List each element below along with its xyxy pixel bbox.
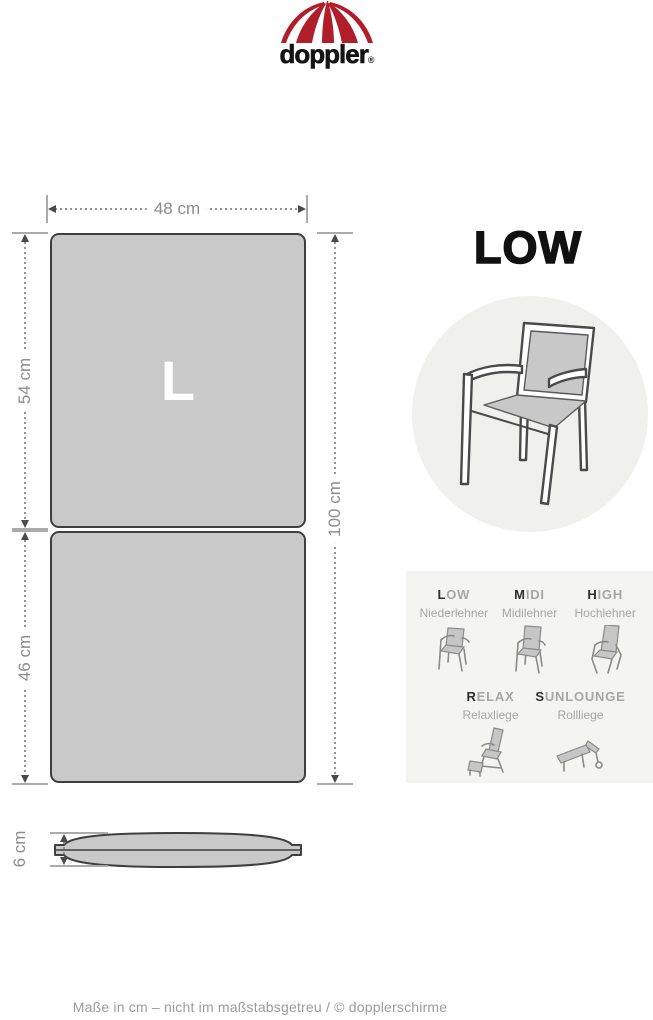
chair-relax-icon bbox=[467, 727, 515, 779]
variants-panel: LOW Niederlehner MIDI Midilehner bbox=[406, 571, 653, 783]
umbrella-icon bbox=[279, 0, 375, 44]
cushion-backrest: L bbox=[50, 233, 306, 528]
chair-low-icon bbox=[432, 625, 476, 675]
dimension-back-height-label: 54 cm bbox=[15, 351, 35, 411]
arrowhead-up-icon bbox=[60, 834, 68, 842]
variant-midi: MIDI Midilehner bbox=[492, 587, 568, 675]
footer-note: Maße in cm – nicht im maßstabsgetreu / ©… bbox=[20, 999, 500, 1015]
variant-code: HIGH bbox=[587, 587, 623, 603]
size-letter: L bbox=[161, 353, 195, 409]
chair-sunlounge-icon bbox=[555, 734, 607, 782]
extension-tick bbox=[12, 232, 48, 234]
variants-row-2: RELAX Relaxliege SUNLOUNGE Rollliege bbox=[406, 689, 653, 782]
variant-code: RELAX bbox=[466, 689, 514, 705]
dimension-total-height: 100 cm bbox=[317, 233, 353, 784]
product-category-title: LOW bbox=[428, 225, 628, 270]
arrowhead-up-icon bbox=[21, 532, 29, 540]
arrowhead-down-icon bbox=[21, 775, 29, 783]
dimension-width: 48 cm bbox=[46, 195, 308, 223]
variant-high: HIGH Hochlehner bbox=[567, 587, 643, 675]
extension-tick bbox=[50, 865, 108, 867]
brand-name: doppler® bbox=[280, 41, 374, 67]
variant-sunlounge: SUNLOUNGE Rollliege bbox=[542, 689, 620, 782]
variant-subtitle: Rollliege bbox=[557, 708, 603, 722]
brand-logo: doppler® bbox=[0, 0, 653, 67]
arrowhead-down-icon bbox=[331, 775, 339, 783]
chair-high-icon bbox=[583, 625, 627, 675]
variant-code: LOW bbox=[437, 587, 470, 603]
cushion-seat bbox=[50, 531, 306, 783]
arrowhead-up-icon bbox=[21, 234, 29, 242]
variant-relax: RELAX Relaxliege bbox=[452, 689, 530, 782]
registered-mark: ® bbox=[368, 55, 374, 65]
page: doppler® 48 cm L 54 cm 46 cm bbox=[0, 0, 653, 1020]
dimension-thickness bbox=[59, 834, 69, 865]
extension-tick bbox=[12, 783, 48, 785]
arrowhead-up-icon bbox=[331, 234, 339, 242]
variant-subtitle: Midilehner bbox=[502, 606, 557, 620]
dimension-total-height-label: 100 cm bbox=[325, 474, 345, 544]
variant-subtitle: Relaxliege bbox=[462, 708, 518, 722]
dimension-thickness-label: 6 cm bbox=[10, 831, 30, 868]
dimension-seat-height-label: 46 cm bbox=[15, 627, 35, 687]
dimension-width-label: 48 cm bbox=[147, 199, 207, 219]
extension-tick bbox=[12, 530, 48, 532]
dimension-back-height: 54 cm bbox=[12, 233, 48, 529]
arrowhead-right-icon bbox=[298, 205, 306, 213]
arrowhead-down-icon bbox=[60, 857, 68, 865]
extension-tick bbox=[317, 783, 353, 785]
variant-code: MIDI bbox=[514, 587, 545, 603]
low-chair-icon bbox=[452, 312, 612, 512]
chair-midi-icon bbox=[508, 625, 552, 675]
dimension-line bbox=[63, 842, 65, 857]
extension-tick bbox=[306, 195, 308, 223]
variant-subtitle: Hochlehner bbox=[574, 606, 635, 620]
chair-illustration-circle bbox=[412, 296, 648, 532]
variant-code: SUNLOUNGE bbox=[535, 689, 625, 705]
variant-subtitle: Niederlehner bbox=[419, 606, 488, 620]
variants-row-1: LOW Niederlehner MIDI Midilehner bbox=[406, 587, 653, 675]
dimension-seat-height: 46 cm bbox=[12, 531, 48, 784]
arrowhead-left-icon bbox=[48, 205, 56, 213]
arrowhead-down-icon bbox=[21, 520, 29, 528]
variant-low: LOW Niederlehner bbox=[416, 587, 492, 675]
